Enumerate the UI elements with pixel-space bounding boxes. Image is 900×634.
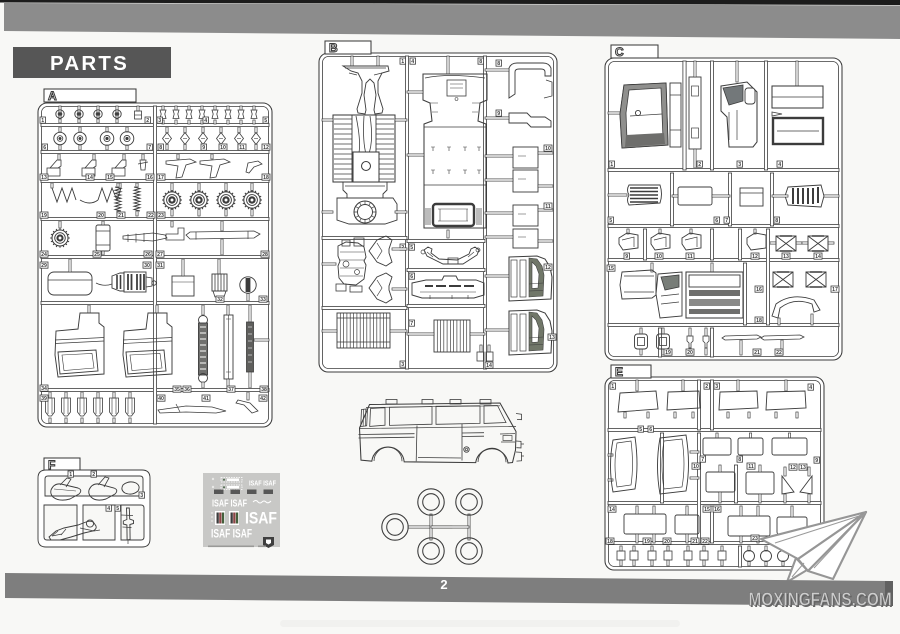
- svg-text:ISAF ISAF: ISAF ISAF: [211, 529, 252, 541]
- svg-text:4: 4: [204, 118, 207, 124]
- svg-text:39: 39: [41, 396, 47, 402]
- svg-text:5: 5: [609, 218, 612, 224]
- svg-text:19: 19: [41, 213, 47, 219]
- svg-text:37: 37: [228, 387, 234, 393]
- svg-text:2: 2: [146, 118, 149, 124]
- svg-text:17: 17: [832, 287, 838, 293]
- svg-text:20: 20: [664, 539, 670, 545]
- svg-text:8: 8: [159, 145, 162, 151]
- svg-text:29: 29: [41, 263, 47, 269]
- svg-text:18: 18: [607, 539, 613, 545]
- svg-text:7: 7: [410, 321, 413, 327]
- svg-text:42: 42: [260, 396, 266, 402]
- svg-text:9: 9: [497, 111, 500, 117]
- svg-text:16: 16: [147, 175, 153, 181]
- svg-text:ISAF ISAF: ISAF ISAF: [212, 499, 247, 510]
- svg-text:ISAF: ISAF: [245, 510, 277, 528]
- svg-text:5: 5: [639, 427, 642, 433]
- svg-text:21: 21: [118, 213, 124, 219]
- svg-text:12: 12: [263, 145, 269, 151]
- svg-text:20: 20: [98, 213, 104, 219]
- svg-text:30: 30: [144, 263, 150, 269]
- svg-text:33: 33: [260, 297, 266, 303]
- svg-text:2: 2: [698, 162, 701, 168]
- svg-text:16: 16: [714, 507, 720, 513]
- svg-text:8: 8: [738, 457, 741, 463]
- svg-text:20: 20: [687, 350, 693, 356]
- svg-text:28: 28: [262, 252, 268, 258]
- svg-text:6: 6: [410, 274, 413, 280]
- svg-text:1: 1: [611, 384, 614, 390]
- svg-text:2: 2: [705, 384, 708, 390]
- svg-text:18: 18: [756, 318, 762, 324]
- svg-text:35: 35: [174, 387, 180, 393]
- svg-text:41: 41: [203, 396, 209, 402]
- svg-text:23: 23: [158, 213, 164, 219]
- svg-text:24: 24: [41, 252, 47, 258]
- svg-text:21: 21: [754, 350, 760, 356]
- svg-text:12: 12: [545, 265, 551, 271]
- svg-text:23: 23: [752, 536, 758, 542]
- svg-text:3: 3: [738, 162, 741, 168]
- svg-text:B: B: [329, 41, 338, 55]
- svg-text:11: 11: [687, 254, 693, 260]
- svg-text:10: 10: [220, 145, 226, 151]
- svg-text:31: 31: [157, 263, 163, 269]
- svg-text:5: 5: [116, 506, 119, 512]
- svg-text:10: 10: [693, 464, 699, 470]
- svg-text:15: 15: [107, 175, 113, 181]
- svg-text:11: 11: [545, 204, 551, 210]
- svg-text:13: 13: [800, 465, 806, 471]
- svg-text:13: 13: [783, 254, 789, 260]
- svg-text:8: 8: [775, 218, 778, 224]
- svg-text:27: 27: [157, 252, 163, 258]
- svg-text:17: 17: [158, 175, 164, 181]
- svg-text:22: 22: [702, 539, 708, 545]
- svg-text:26: 26: [145, 252, 151, 258]
- svg-text:14: 14: [609, 507, 615, 513]
- svg-text:34: 34: [41, 386, 47, 392]
- svg-text:PARTS: PARTS: [50, 52, 129, 75]
- svg-text:7: 7: [725, 218, 728, 224]
- svg-text:10: 10: [656, 254, 662, 260]
- svg-text:14: 14: [815, 254, 821, 260]
- svg-text:9: 9: [625, 254, 628, 260]
- svg-text:1: 1: [401, 59, 404, 65]
- svg-text:12: 12: [790, 465, 796, 471]
- svg-text:40: 40: [158, 396, 164, 402]
- svg-text:36: 36: [184, 387, 190, 393]
- svg-text:ISAF ISAF: ISAF ISAF: [249, 479, 276, 488]
- svg-text:13: 13: [549, 335, 555, 341]
- svg-text:A: A: [48, 89, 57, 103]
- svg-text:22: 22: [148, 213, 154, 219]
- svg-text:11: 11: [748, 464, 754, 470]
- svg-text:3: 3: [140, 493, 143, 499]
- svg-text:14: 14: [486, 363, 492, 369]
- svg-text:10: 10: [545, 146, 551, 152]
- svg-text:16: 16: [756, 287, 762, 293]
- svg-text:4: 4: [809, 385, 812, 391]
- svg-text:21: 21: [692, 539, 698, 545]
- svg-text:18: 18: [263, 175, 269, 181]
- svg-text:3: 3: [715, 384, 718, 390]
- svg-text:15: 15: [608, 266, 614, 272]
- svg-text:5: 5: [264, 118, 267, 124]
- svg-text:E: E: [615, 365, 623, 379]
- svg-text:19: 19: [644, 539, 650, 545]
- svg-text:3: 3: [401, 362, 404, 368]
- svg-text:2: 2: [440, 577, 447, 592]
- svg-text:6: 6: [649, 427, 652, 433]
- svg-text:6: 6: [43, 145, 46, 151]
- svg-text:9: 9: [815, 458, 818, 464]
- svg-text:4: 4: [778, 162, 781, 168]
- svg-text:1: 1: [610, 162, 613, 168]
- svg-text:3: 3: [158, 118, 161, 124]
- svg-text:9: 9: [202, 145, 205, 151]
- svg-text:4: 4: [107, 506, 110, 512]
- svg-text:MOXINGFANS.COM: MOXINGFANS.COM: [748, 589, 891, 609]
- svg-text:19: 19: [665, 350, 671, 356]
- svg-text:C: C: [615, 45, 624, 59]
- svg-text:5: 5: [410, 245, 413, 251]
- svg-text:7: 7: [148, 145, 151, 151]
- svg-text:1: 1: [69, 472, 72, 478]
- svg-text:8: 8: [479, 59, 482, 65]
- svg-text:4: 4: [411, 59, 414, 65]
- svg-text:15: 15: [704, 507, 710, 513]
- svg-text:14: 14: [87, 175, 93, 181]
- svg-text:32: 32: [217, 297, 223, 303]
- svg-text:13: 13: [41, 175, 47, 181]
- svg-text:38: 38: [261, 387, 267, 393]
- svg-text:12: 12: [752, 254, 758, 260]
- svg-text:1: 1: [41, 118, 44, 124]
- svg-text:6: 6: [715, 218, 718, 224]
- svg-text:11: 11: [239, 145, 245, 151]
- svg-text:8: 8: [497, 61, 500, 67]
- svg-text:25: 25: [94, 252, 100, 258]
- svg-text:2: 2: [92, 472, 95, 478]
- svg-text:22: 22: [776, 350, 782, 356]
- svg-text:7: 7: [701, 457, 704, 463]
